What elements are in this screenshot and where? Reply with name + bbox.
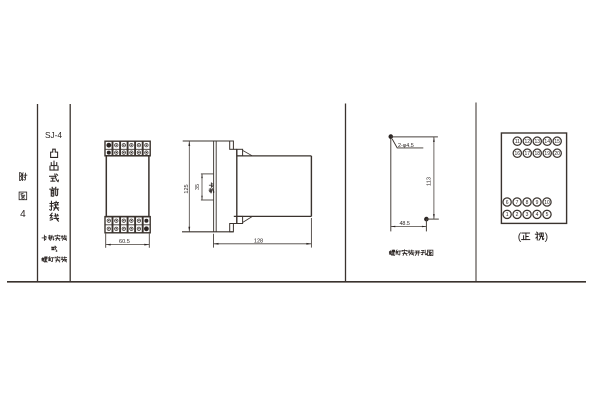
svg-text:20: 20 [554, 151, 560, 157]
svg-text:8: 8 [526, 200, 529, 206]
svg-text:13: 13 [534, 139, 540, 145]
svg-text:35: 35 [195, 184, 201, 190]
svg-text:3: 3 [526, 212, 529, 218]
svg-text:11: 11 [515, 139, 520, 145]
svg-text:4: 4 [536, 212, 539, 218]
svg-text:(: ( [518, 231, 522, 243]
svg-text:4: 4 [20, 209, 26, 220]
svg-text:): ) [545, 231, 549, 243]
svg-text:15: 15 [554, 139, 560, 145]
svg-text:113: 113 [426, 177, 432, 186]
svg-text:1: 1 [506, 212, 509, 218]
svg-text:7: 7 [516, 200, 519, 206]
svg-text:18: 18 [534, 151, 540, 157]
svg-text:6: 6 [506, 200, 509, 206]
svg-text:125: 125 [184, 184, 190, 193]
svg-text:48.5: 48.5 [399, 221, 410, 227]
svg-text:SJ-4: SJ-4 [45, 130, 62, 140]
svg-text:16: 16 [515, 151, 521, 157]
svg-text:10: 10 [544, 200, 550, 206]
svg-text:128: 128 [254, 238, 263, 244]
svg-text:17: 17 [524, 151, 530, 157]
svg-text:9: 9 [536, 200, 539, 206]
svg-text:2: 2 [516, 212, 519, 218]
svg-text:60.5: 60.5 [119, 239, 130, 245]
svg-text:14: 14 [544, 139, 550, 145]
svg-text:5: 5 [546, 212, 549, 218]
svg-text:2-φ4.5: 2-φ4.5 [398, 143, 414, 149]
svg-text:12: 12 [524, 139, 530, 145]
svg-text:19: 19 [544, 151, 550, 157]
